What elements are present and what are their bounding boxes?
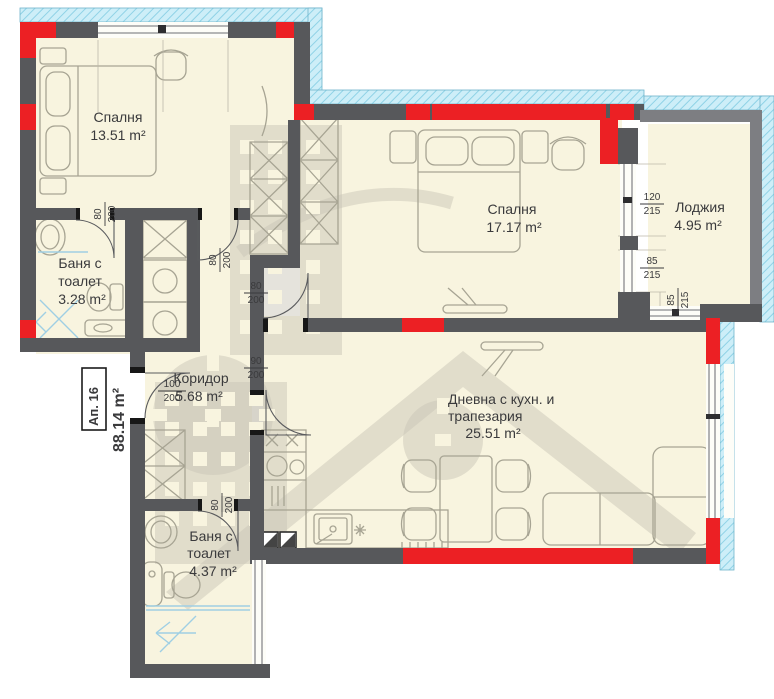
- column-b2-3: [432, 104, 606, 120]
- loggia-name: Лоджия: [675, 199, 725, 215]
- column-b2-bottom: [402, 318, 444, 332]
- bath2-glass-bg: [252, 560, 266, 664]
- loggia-area: 4.95 m²: [674, 217, 722, 233]
- living-window: [706, 364, 720, 518]
- dim-bath2-door-h: 200: [224, 496, 235, 513]
- wall-divider-stub: [250, 255, 300, 268]
- bath1-name-1: Баня с: [58, 255, 101, 271]
- wall-block-bottom: [20, 338, 200, 352]
- dim-closet-door-w: 80: [208, 254, 219, 266]
- dim-bath1-door-w: 80: [93, 208, 104, 220]
- wall-left: [20, 22, 36, 352]
- loggia-window-bottom-el: [650, 306, 700, 320]
- corridor-area: 5.68 m²: [175, 388, 223, 404]
- living-area: 25.51 m²: [465, 425, 521, 441]
- apartment-label-group: Ап. 16 88.14 m²: [82, 368, 128, 452]
- column-living-right-bottom: [706, 518, 720, 564]
- bedroom2-name: Спалня: [488, 201, 537, 217]
- bath1-name-2: тоалет: [58, 273, 102, 289]
- wall-lower-left: [130, 418, 145, 678]
- dim-entrance-door-w: 100: [164, 379, 181, 390]
- floor-plan-svg: Ап. 16 88.14 m² Спалня 13.51 m² Спалня 1…: [0, 0, 774, 699]
- bath1-area: 3.28 m²: [58, 291, 106, 307]
- insulation-step: [308, 8, 322, 104]
- column-living-bottom: [403, 548, 633, 564]
- dim-loggia-win1-h: 215: [644, 206, 661, 217]
- living-window-tick: [706, 414, 720, 419]
- dim-entrance-door-h: 200: [164, 393, 181, 404]
- wall-bath1-top-a: [36, 208, 76, 220]
- dim-loggia-win2-h: 215: [644, 270, 661, 281]
- bath2-glass-wall: [252, 560, 266, 664]
- dim-closet-door-h: 200: [222, 251, 233, 268]
- bath2-name-2: тоалет: [187, 545, 231, 561]
- column-b2-right: [600, 118, 618, 164]
- column-top-left: [20, 22, 56, 38]
- bedroom1-area: 13.51 m²: [90, 127, 146, 143]
- living-window-sill: [724, 364, 734, 518]
- wall-bath1-right: [125, 208, 143, 338]
- bedroom1-window: [98, 22, 228, 38]
- wall-b2-right-bottom: [618, 292, 650, 332]
- wall-b2-right-top: [618, 128, 638, 164]
- column-left-mid: [20, 104, 36, 130]
- bath2-name-1: Баня с: [189, 528, 232, 544]
- insulation-top-left: [20, 8, 322, 22]
- bath2-area: 4.37 m²: [189, 563, 237, 579]
- corridor-name: Коридор: [173, 370, 229, 386]
- dim-living-door-w: 90: [250, 356, 262, 367]
- column-living-right-top: [706, 318, 720, 364]
- loggia-win1-tick: [623, 197, 632, 203]
- wall-bath2-bottom: [130, 664, 270, 678]
- bedroom1-name: Спалня: [94, 109, 143, 125]
- bedroom1-window-tick: [158, 25, 166, 33]
- wall-b2-right-mid: [620, 236, 638, 250]
- wall-b2-bottom-a: [250, 318, 263, 332]
- bedroom2-area: 17.17 m²: [486, 219, 542, 235]
- dim-bedroom2-door-w: 80: [250, 281, 262, 292]
- column-b2-2: [406, 104, 430, 120]
- insulation-loggia-right: [760, 96, 774, 322]
- living-name-1: Дневна с кухн. и: [448, 391, 554, 407]
- loggia-window-top-el: [620, 164, 636, 236]
- loggia-win2-bg: [620, 250, 636, 292]
- apartment-area: 88.14 m²: [111, 388, 128, 452]
- dim-loggia-win3-h: 215: [680, 291, 691, 308]
- loggia-wall-right: [750, 110, 762, 322]
- entrance-door-jambs: [130, 367, 145, 424]
- dim-loggia-win2-w: 85: [646, 256, 658, 267]
- wall-bath2-top-a: [145, 499, 198, 511]
- column-b2-1: [294, 104, 314, 120]
- column-top-right: [276, 22, 294, 38]
- insulation-top-mid: [308, 90, 644, 104]
- loggia-window-mid-el: [620, 250, 636, 292]
- dim-bath2-door-w: 80: [210, 499, 221, 511]
- wall-closet-top-b: [238, 208, 250, 220]
- wall-bath2-top-b: [238, 499, 252, 511]
- apartment-number: Ап. 16: [86, 387, 101, 426]
- loggia-wall-top: [640, 110, 762, 122]
- dim-living-door-h: 200: [248, 370, 265, 381]
- column-b2-4: [610, 104, 634, 120]
- living-window-bg: [706, 364, 720, 518]
- dim-bath1-door-h: 200: [107, 205, 118, 222]
- living-name-2: трапезария: [448, 408, 522, 424]
- bedroom2-floor: [300, 118, 622, 320]
- insulation-loggia-top: [644, 96, 774, 110]
- dim-bedroom2-door-h: 200: [248, 295, 265, 306]
- dim-loggia-win1-w: 120: [644, 192, 661, 203]
- floor-plan: Ап. 16 88.14 m² Спалня 13.51 m² Спалня 1…: [0, 0, 774, 699]
- wall-corridor-right-b: [250, 435, 264, 560]
- wall-bedroom-divider: [288, 120, 300, 255]
- dim-loggia-win3-w: 85: [666, 294, 677, 306]
